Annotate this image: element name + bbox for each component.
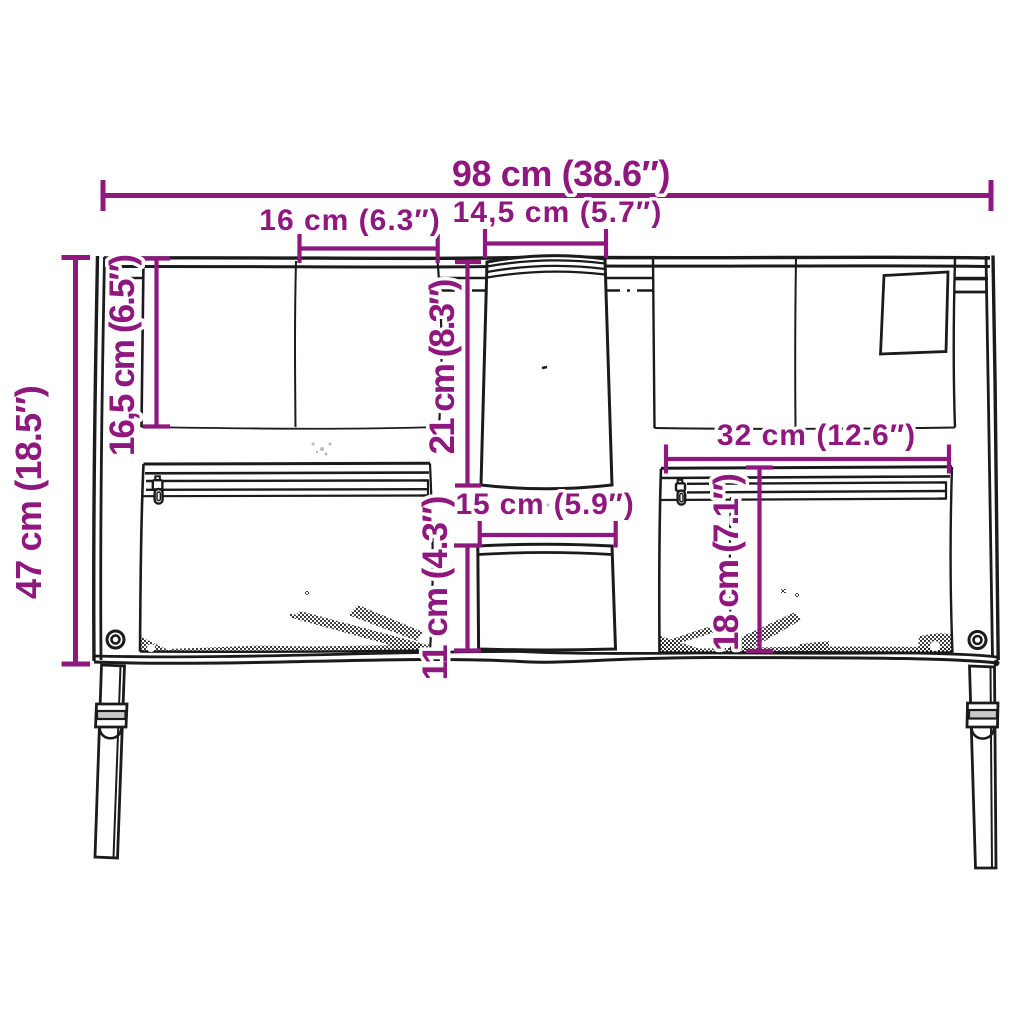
svg-text:15 cm (5.9″): 15 cm (5.9″) xyxy=(455,488,634,521)
svg-text:16,5 cm (6.5″): 16,5 cm (6.5″) xyxy=(103,256,142,457)
svg-text:16 cm (6.3″): 16 cm (6.3″) xyxy=(259,204,440,237)
svg-text:11 cm (4.3″): 11 cm (4.3″) xyxy=(416,497,455,681)
svg-text:18 cm (7.1″): 18 cm (7.1″) xyxy=(707,475,746,651)
svg-text:98 cm (38.6″): 98 cm (38.6″) xyxy=(452,153,670,194)
svg-text:21 cm (8.3″): 21 cm (8.3″) xyxy=(423,280,462,454)
svg-text:14,5 cm (5.7″): 14,5 cm (5.7″) xyxy=(453,196,663,229)
svg-text:47 cm (18.5″): 47 cm (18.5″) xyxy=(8,386,49,599)
svg-text:32 cm (12.6″): 32 cm (12.6″) xyxy=(717,419,916,452)
